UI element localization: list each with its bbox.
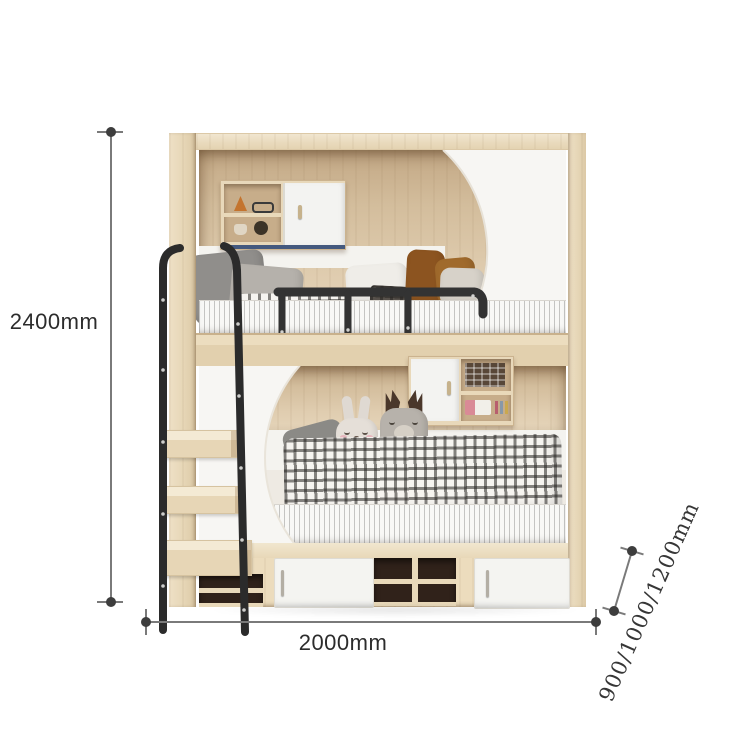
height-dot-bottom xyxy=(106,597,116,607)
depth-label: 900/1000/1200mm xyxy=(594,497,706,707)
ladder-screws xyxy=(161,298,246,612)
width-dot-left xyxy=(141,617,151,627)
drawer-right-handle xyxy=(486,570,489,597)
lower-cabinet-shelf-divider xyxy=(461,391,511,395)
width-dot-right xyxy=(591,617,601,627)
lower-cabinet-shelves xyxy=(461,359,511,421)
decor-toy-truck xyxy=(465,400,491,415)
guardrail-bar xyxy=(278,292,483,314)
decor-bottle-1 xyxy=(495,401,498,414)
drawer-left-handle xyxy=(281,570,284,596)
depth-dot-bottom xyxy=(609,606,619,616)
decor-bottle-2 xyxy=(500,401,503,414)
depth-dot-top xyxy=(627,546,637,556)
height-dimension-line xyxy=(110,132,112,602)
width-label: 2000mm xyxy=(268,630,418,656)
frame-right-panel xyxy=(568,133,586,607)
guardrail-screws xyxy=(280,294,474,333)
ladder-left-rail xyxy=(163,248,180,630)
cabinet-door-handle xyxy=(298,205,302,219)
storage-drawer-right xyxy=(474,558,570,609)
decor-picture-frame xyxy=(465,363,505,387)
open-storage-compartments xyxy=(374,558,456,606)
ladder-right-rail xyxy=(224,246,245,632)
cabinet-shelf-divider xyxy=(224,213,281,217)
depth-dimension-line xyxy=(614,551,632,611)
decor-sphere xyxy=(254,221,268,235)
decor-bottle-3 xyxy=(505,401,508,414)
decor-cone xyxy=(234,196,247,211)
depth-tick-top xyxy=(621,548,644,555)
frame-top-board xyxy=(169,133,586,150)
lower-panel-arc-edge xyxy=(265,366,459,546)
cabinet-sliding-door xyxy=(283,183,345,245)
bunk-bed-dimension-diagram: 2400mm 2000mm 900/1000/1200mm xyxy=(0,0,750,750)
storage-drawer-left xyxy=(274,558,374,608)
floor-shadow xyxy=(205,603,585,617)
width-dimension-line xyxy=(146,621,596,623)
compartment-mid-shelf xyxy=(374,579,456,584)
height-dot-top xyxy=(106,127,116,137)
depth-tick-bottom xyxy=(603,608,626,615)
height-label: 2400mm xyxy=(4,309,104,335)
ladder-rails xyxy=(150,238,260,638)
decor-bowl xyxy=(234,224,247,235)
guardrail-posts xyxy=(282,294,408,338)
decor-glasses xyxy=(252,202,274,213)
cabinet-open-shelves xyxy=(224,184,281,242)
